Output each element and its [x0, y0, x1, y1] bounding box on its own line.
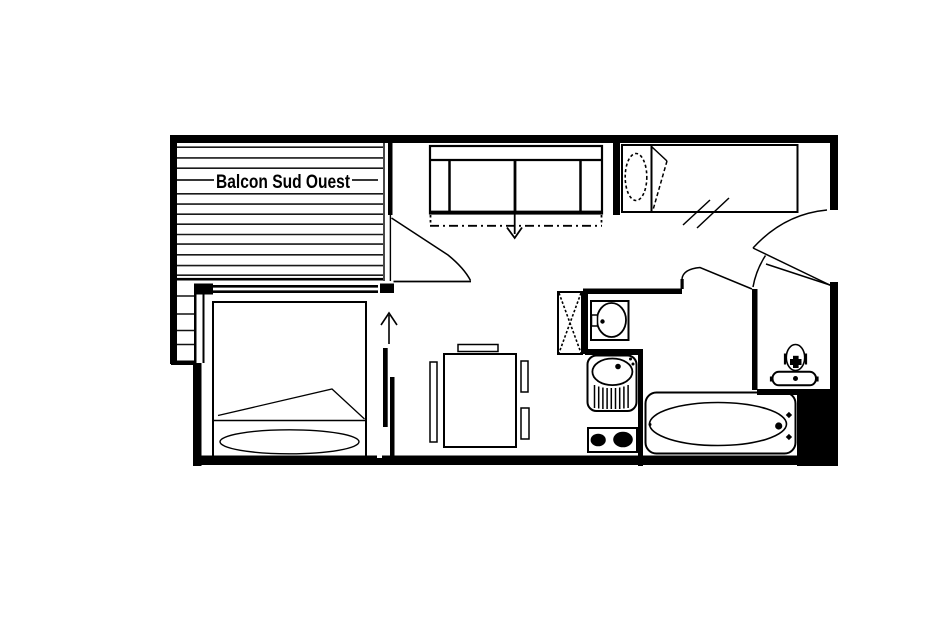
svg-text:Balcon Sud Ouest: Balcon Sud Ouest — [216, 172, 351, 193]
